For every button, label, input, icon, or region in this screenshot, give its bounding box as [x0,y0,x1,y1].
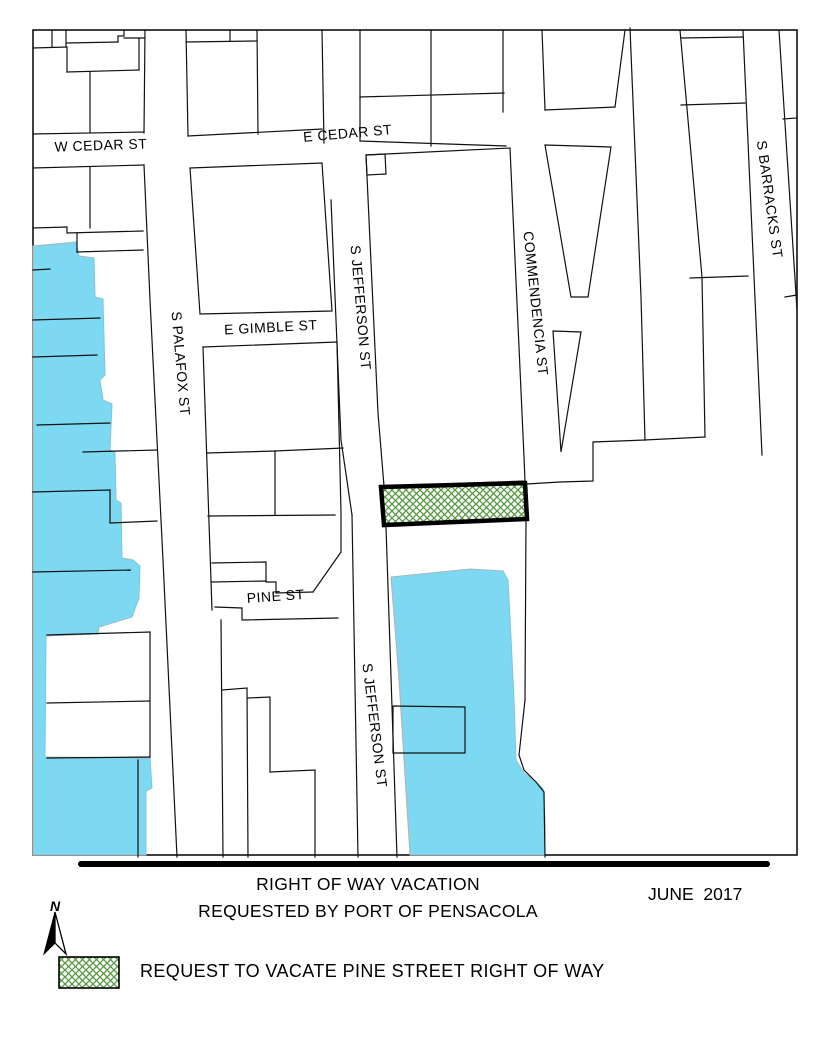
map-title-line1: RIGHT OF WAY VACATION [168,874,568,895]
legend-swatch-hatch [58,956,120,989]
street-label: W CEDAR ST [54,135,147,154]
map-sheet: W CEDAR STE CEDAR STE GIMBLE STS PALAFOX… [0,0,816,1056]
map-date: JUNE 2017 [648,884,742,905]
title-separator-bar [78,861,770,867]
vacation-area [381,483,527,525]
legend-label: REQUEST TO VACATE PINE STREET RIGHT OF W… [140,961,605,982]
north-arrow-icon [40,910,70,958]
legend-swatch-rect [59,957,119,988]
map-title-line2: REQUESTED BY PORT OF PENSACOLA [168,901,568,922]
